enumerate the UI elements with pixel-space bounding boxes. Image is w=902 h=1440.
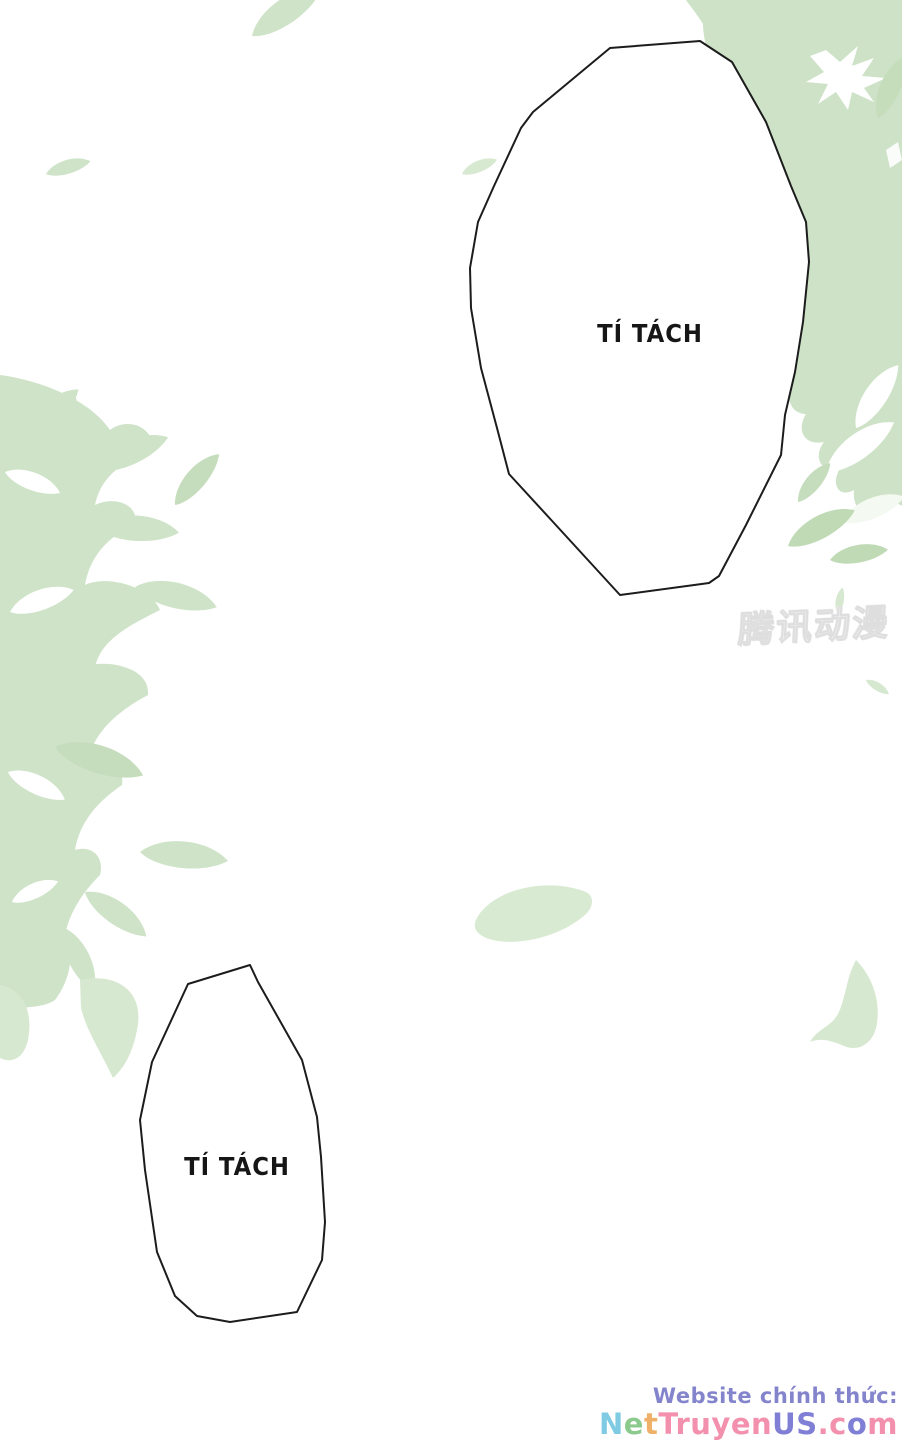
url-letter: r — [675, 1407, 690, 1440]
foliage-left — [0, 375, 230, 1078]
speech-bubble-bottom — [140, 965, 325, 1322]
url-letter: T — [658, 1407, 675, 1440]
url-letter: U — [772, 1407, 796, 1440]
sfx-text-bottom: TÍ TÁCH — [178, 1153, 296, 1182]
site-credit: Website chính thức: NetTruyenUS.com — [599, 1385, 898, 1439]
url-letter: S — [796, 1407, 817, 1440]
site-credit-url: NetTruyenUS.com — [599, 1409, 898, 1439]
url-letter: . — [818, 1407, 830, 1440]
speech-bubble-top — [470, 41, 809, 595]
url-letter: n — [751, 1407, 772, 1440]
leaf-lower-right — [810, 960, 878, 1048]
url-letter: y — [711, 1407, 730, 1440]
url-letter: t — [644, 1407, 658, 1440]
url-letter: e — [731, 1407, 751, 1440]
comic-page: TÍ TÁCH TÍ TÁCH 腾讯动漫 Website chính thức:… — [0, 0, 902, 1440]
site-credit-label: Website chính thức: — [599, 1385, 898, 1408]
sfx-text-top: TÍ TÁCH — [591, 320, 709, 349]
speech-bubbles — [140, 41, 809, 1322]
leaf-artwork — [0, 0, 902, 1440]
url-letter: N — [599, 1407, 624, 1440]
leaf-mid — [475, 885, 592, 942]
publisher-watermark: 腾讯动漫 — [737, 601, 902, 651]
url-letter: o — [847, 1407, 867, 1440]
url-letter: u — [690, 1407, 711, 1440]
url-letter: m — [867, 1407, 898, 1440]
url-letter: c — [829, 1407, 847, 1440]
url-letter: e — [624, 1407, 644, 1440]
